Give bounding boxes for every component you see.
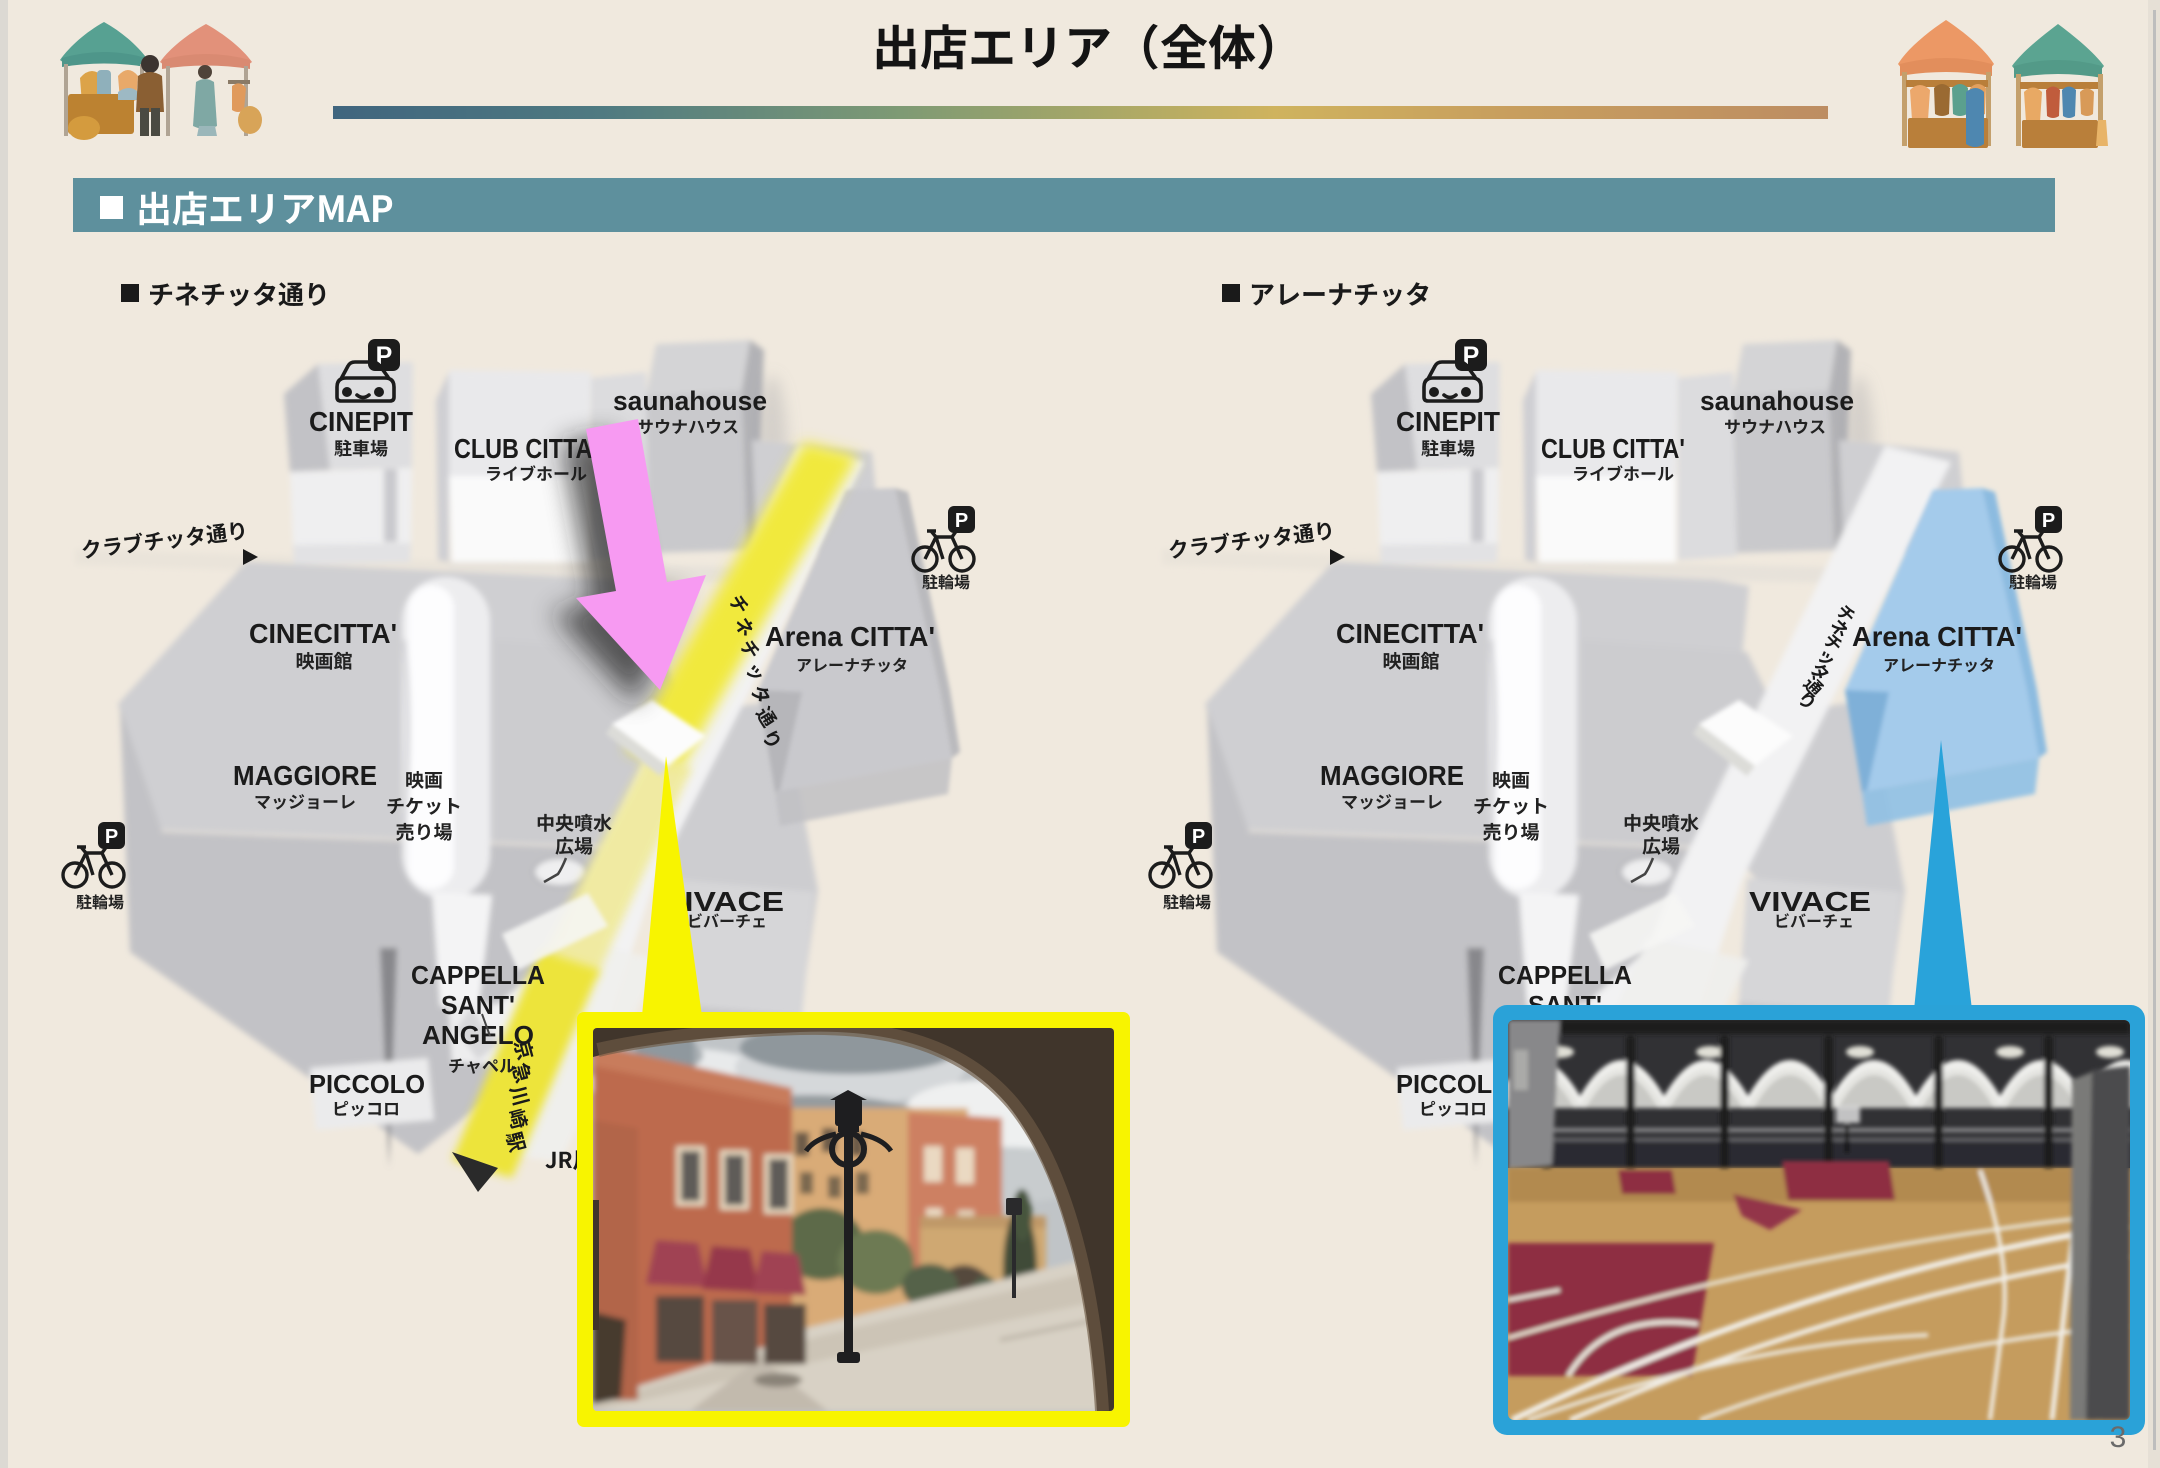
svg-text:3: 3: [2110, 1421, 2127, 1454]
